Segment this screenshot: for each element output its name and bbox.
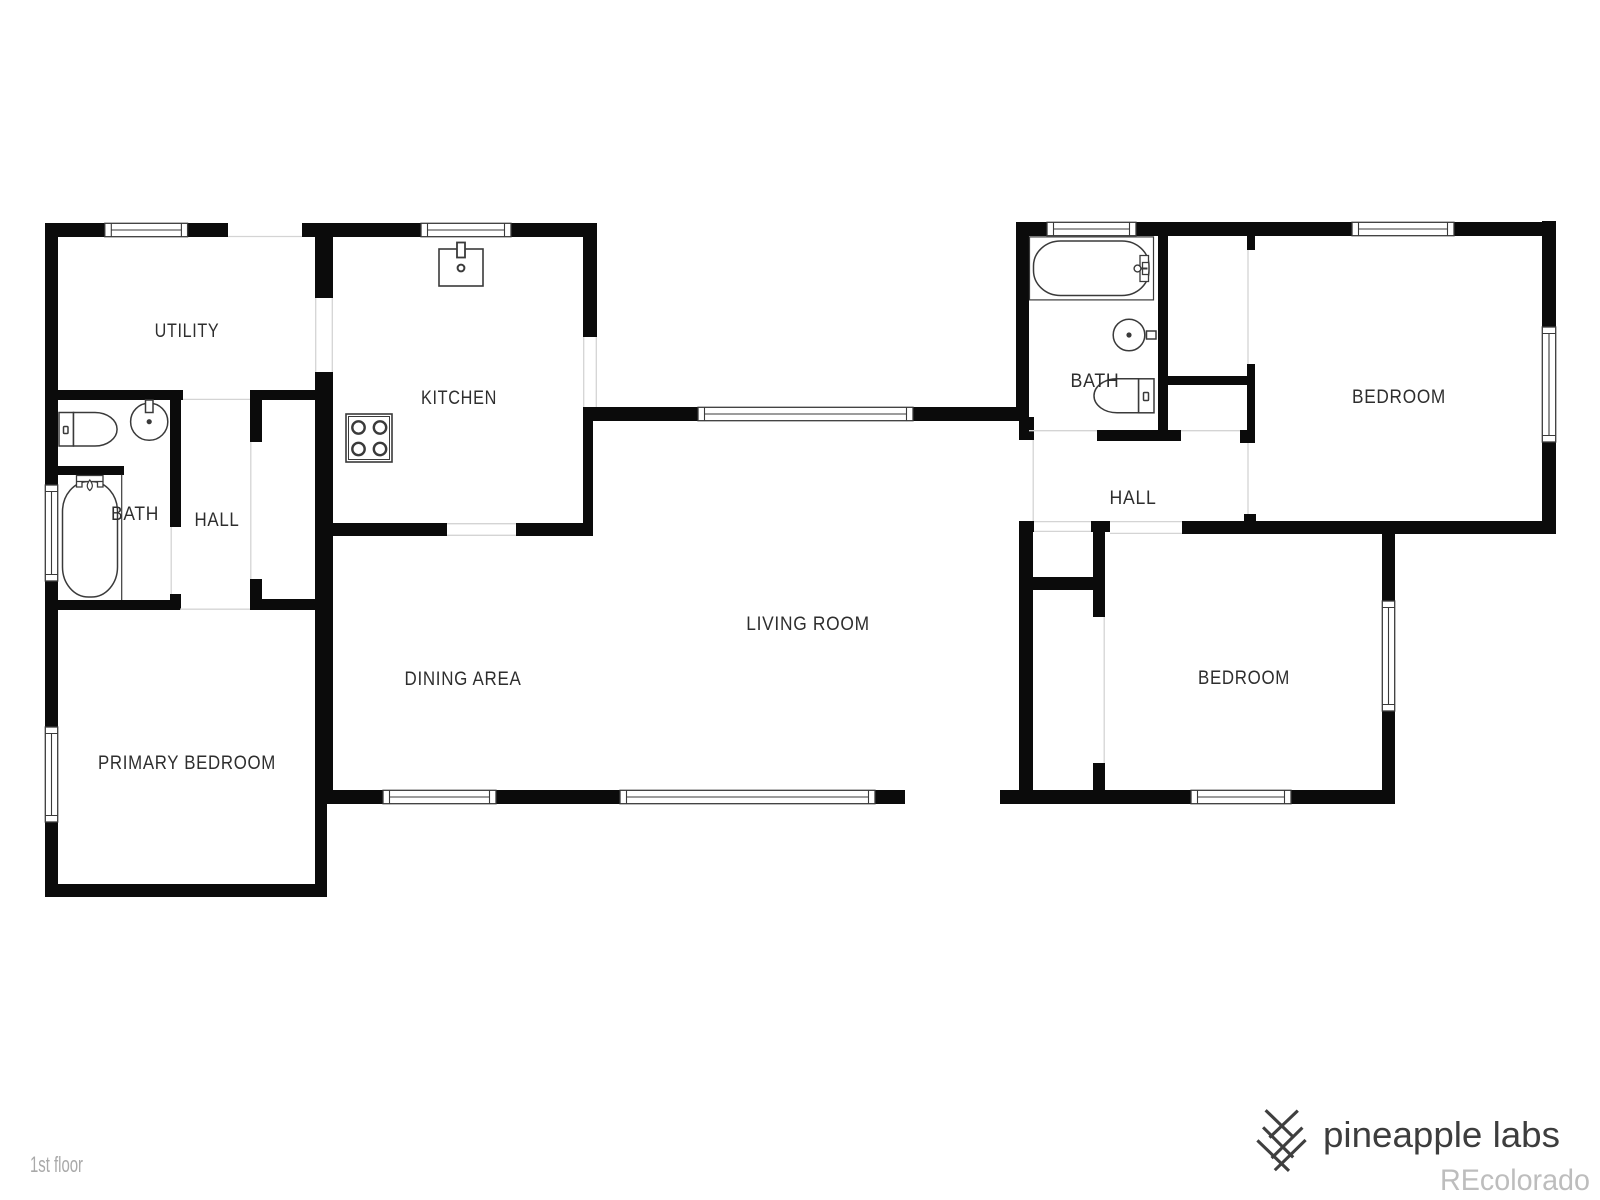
svg-text:BATH: BATH bbox=[1071, 370, 1120, 392]
svg-text:DINING AREA: DINING AREA bbox=[405, 668, 522, 690]
svg-text:HALL: HALL bbox=[1110, 487, 1157, 509]
svg-text:BEDROOM: BEDROOM bbox=[1198, 667, 1290, 689]
svg-text:1st floor: 1st floor bbox=[30, 1152, 83, 1177]
svg-text:REcolorado: REcolorado bbox=[1440, 1164, 1590, 1197]
svg-text:BATH: BATH bbox=[111, 503, 159, 525]
svg-text:HALL: HALL bbox=[195, 509, 240, 531]
svg-text:KITCHEN: KITCHEN bbox=[421, 387, 497, 409]
svg-text:PRIMARY BEDROOM: PRIMARY BEDROOM bbox=[98, 752, 276, 774]
svg-text:pineapple labs: pineapple labs bbox=[1323, 1114, 1560, 1155]
svg-text:LIVING ROOM: LIVING ROOM bbox=[746, 613, 870, 635]
svg-text:UTILITY: UTILITY bbox=[155, 320, 220, 342]
svg-text:BEDROOM: BEDROOM bbox=[1352, 386, 1446, 408]
